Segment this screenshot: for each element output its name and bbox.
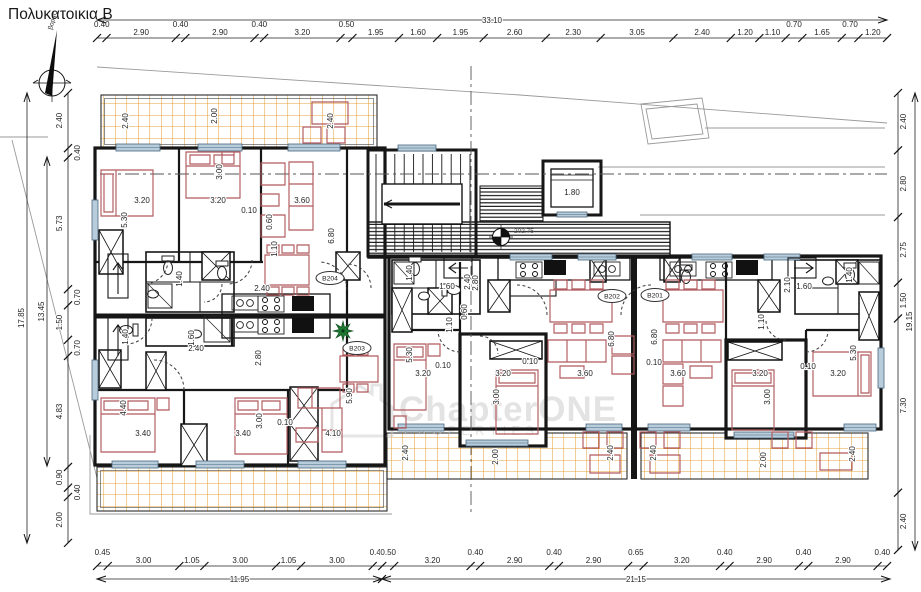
interior-dimension-label: 2.40	[463, 274, 472, 290]
dimension-label: 2.90	[212, 28, 228, 37]
interior-dimension-label: 3.00	[215, 164, 224, 180]
overall-dimension-label: 17.85	[17, 307, 26, 328]
apartment-label: B203	[349, 345, 365, 352]
window	[878, 348, 884, 388]
interior-dimension-label: 3.20	[210, 196, 226, 205]
overall-dimension-label: 13.45	[37, 301, 46, 322]
dimension-label: 1.50	[899, 292, 908, 308]
toilet-tank	[133, 324, 138, 336]
stove-burner	[275, 328, 280, 333]
kitchen-sink-icon	[232, 318, 258, 332]
kitchen-sink-bowl	[237, 300, 244, 307]
dimension-label: 0.40	[717, 548, 733, 557]
dimension-label: 2.90	[133, 28, 149, 37]
sink-icon	[419, 292, 430, 300]
stove-icon	[258, 296, 284, 312]
kitchen-sink-icon	[232, 296, 258, 310]
dimension-label: 2.60	[507, 28, 523, 37]
interior-dimension-label: 2.80	[254, 350, 263, 366]
interior-dimension-label: 2.40	[649, 445, 658, 461]
interior-dimension-label: 0.60	[265, 214, 274, 230]
interior-dimension-label: 2.40	[606, 445, 615, 461]
dimension-label: 1.95	[453, 28, 469, 37]
interior-dimension-label: 1.60	[439, 282, 455, 291]
interior-dimension-label: 0.10	[800, 362, 816, 371]
dimension-label: 2.90	[507, 556, 523, 565]
interior-dimension-label: 0.10	[241, 206, 257, 215]
kitchen-sink-bowl	[247, 300, 254, 307]
sink-icon	[148, 290, 159, 298]
dimension-label: 2.40	[899, 513, 908, 529]
interior-dimension-label: 0.60	[460, 304, 469, 320]
dimension-label: 0.50	[380, 548, 396, 557]
interior-dimension-label: 2.40	[188, 344, 204, 353]
tree-center	[341, 329, 344, 332]
interior-dimension-label: 6.80	[607, 331, 616, 347]
overall-dimension-label: 33.10	[482, 16, 503, 25]
dimension-label: 0.40	[252, 20, 268, 29]
appliance-icon	[736, 260, 758, 275]
toilet-tank	[409, 257, 421, 262]
stove-burner	[263, 320, 268, 325]
level-value: 202.75	[514, 228, 534, 235]
column-box	[290, 387, 318, 461]
interior-dimension-label: 6.80	[327, 228, 336, 244]
dimension-label: 2.00	[55, 512, 64, 528]
interior-dimension-label: 5.90	[345, 388, 354, 404]
interior-dimension-label: 0.10	[522, 357, 538, 366]
interior-dimension-label: 1.40	[405, 265, 414, 281]
dimension-label: 1.05	[281, 556, 297, 565]
dimension-label: 0.65	[628, 548, 644, 557]
dimension-label: 2.40	[55, 112, 64, 128]
interior-dimension-label: 3.40	[235, 429, 251, 438]
dimension-label: 0.40	[796, 548, 812, 557]
interior-dimension-label: 3.20	[752, 369, 768, 378]
shower-diag	[204, 316, 230, 342]
dimension-label: 1.10	[765, 28, 781, 37]
tree-icon	[334, 322, 353, 341]
interior-dimension-label: 2.40	[401, 445, 410, 461]
window	[92, 360, 98, 400]
toilet-tank	[216, 261, 228, 266]
dimension-label: 3.20	[294, 28, 310, 37]
dimension-label: 0.40	[468, 548, 484, 557]
interior-dimension-label: 5.30	[849, 345, 858, 361]
interior-dimension-label: 2.00	[210, 108, 219, 124]
overall-dimension-label: 19.15	[905, 311, 914, 332]
dimension-label: 2.30	[565, 28, 581, 37]
appliance-icon	[292, 318, 314, 333]
interior-dimension-label: 1.10	[270, 241, 279, 257]
interior-dimension-label: 2.80	[471, 275, 480, 291]
interior-dimension-label: 1.40	[845, 267, 854, 283]
window	[92, 200, 98, 240]
stove-burner	[275, 320, 280, 325]
dimension-label: 2.40	[694, 28, 710, 37]
interior-dimension-label: 4.10	[325, 429, 341, 438]
house-icon	[332, 385, 392, 436]
interior-dimension-label: 3.60	[670, 369, 686, 378]
appliance-icon	[292, 296, 314, 311]
dimension-label: 1.05	[184, 556, 200, 565]
dimension-label: 2.90	[756, 556, 772, 565]
interior-dimension-label: 1.40	[175, 271, 184, 287]
north-arrow: βορας	[33, 11, 71, 102]
overall-dimension-label: 11.95	[230, 575, 250, 584]
dimension-label: 0.70	[842, 20, 858, 29]
interior-dimension-label: 3.60	[294, 196, 310, 205]
dimension-label: 1.65	[814, 28, 830, 37]
dimension-label: 3.00	[136, 556, 152, 565]
dimension-label: 0.40	[73, 144, 82, 160]
stove-icon	[516, 262, 542, 278]
toilet-bowl	[218, 267, 227, 280]
dimension-label: 3.00	[329, 556, 345, 565]
dimension-label: 3.20	[425, 556, 441, 565]
dimension-label: 2.80	[899, 175, 908, 191]
dimension-label: 3.00	[232, 556, 248, 565]
stove-burner	[275, 298, 280, 303]
stove-icon	[706, 262, 732, 278]
dimension-label: 0.70	[73, 289, 82, 305]
dimension-label: 0.70	[786, 20, 802, 29]
interior-dimension-label: 3.00	[492, 389, 501, 405]
interior-dimension-label: 3.60	[577, 369, 593, 378]
stove-burner	[711, 264, 716, 269]
north-needle	[45, 30, 57, 96]
overall-dimension-label: 21.15	[626, 575, 647, 584]
stove-burner	[711, 272, 716, 277]
dimension-label: 2.90	[586, 556, 602, 565]
interior-dimension-label: 1.10	[445, 317, 454, 333]
stove-icon	[258, 318, 284, 334]
interior-dimension-label: 1.10	[757, 314, 766, 330]
interior-dimension-label: 3.20	[830, 369, 846, 378]
interior-dimension-label: 2.40	[848, 446, 857, 462]
stove-burner	[521, 272, 526, 277]
interior-dimension-label: 2.10	[783, 277, 792, 293]
apartment-label: B202	[604, 293, 620, 300]
dimension-label: 3.20	[674, 556, 690, 565]
interior-dimension-label: 2.40	[326, 113, 335, 129]
interior-dimension-label: 2.40	[121, 113, 130, 129]
toilet-icon	[216, 261, 228, 280]
interior-dimension-label: 5.30	[405, 347, 414, 363]
balconies	[97, 95, 868, 511]
interior-dimension-label: 0.10	[277, 418, 293, 427]
interior-dimension-label: 3.20	[495, 369, 511, 378]
interior-dimension-label: 1.80	[564, 188, 580, 197]
stove-burner	[533, 272, 538, 277]
dimension-label: 4.83	[55, 403, 64, 419]
kitchen-sink-bowl	[609, 266, 616, 273]
toilet-icon	[680, 265, 692, 284]
dimension-label: 0.70	[73, 340, 82, 356]
dimension-label: 1.95	[368, 28, 384, 37]
dimension-label: 2.75	[899, 242, 908, 258]
interior-dimension-label: 5.30	[120, 212, 129, 228]
interior-dimension-label: 3.40	[135, 429, 151, 438]
interior-dimension-label: 4.40	[119, 400, 128, 416]
interior-dimension-label: 2.00	[759, 452, 768, 468]
dimension-label: 2.40	[899, 113, 908, 129]
stove-burner	[521, 264, 526, 269]
dimension-label: 1.60	[410, 28, 426, 37]
interior-dimension-label: 0.10	[646, 358, 662, 367]
dimension-label: 1.20	[737, 28, 753, 37]
appliance-icon	[544, 260, 566, 275]
interior-dimension-label: 1.40	[121, 329, 130, 345]
dimension-label: 0.90	[55, 469, 64, 485]
dimension-label: 7.30	[899, 397, 908, 413]
shower-diag	[859, 262, 879, 284]
kitchen-sink-bowl	[247, 322, 254, 329]
stove-burner	[263, 328, 268, 333]
balcony-top-left	[101, 95, 377, 148]
interior-dimension-label: 3.00	[763, 389, 772, 405]
toilet-icon	[162, 256, 174, 275]
interior-dimension-label: 3.00	[255, 413, 264, 429]
kitchen-sink-bowl	[237, 322, 244, 329]
sink-icon	[823, 277, 834, 285]
apartment-label: B204	[322, 275, 338, 282]
balcony-bottom-left	[97, 467, 387, 511]
dimension-label: 1.20	[865, 28, 881, 37]
stove-burner	[275, 306, 280, 311]
stove-burner	[533, 264, 538, 269]
dimension-label: 0.40	[875, 548, 891, 557]
entry-deck-strip-a	[480, 186, 543, 222]
dimension-label: 0.50	[339, 20, 355, 29]
stove-burner	[263, 306, 268, 311]
interior-dimension-label: 1.60	[796, 282, 812, 291]
stove-burner	[263, 298, 268, 303]
balcony-b201	[641, 433, 868, 479]
floor-plan-canvas: ChapterONE PROPERTIES	[0, 0, 921, 592]
apartment-label: B201	[647, 292, 663, 299]
dimension-label: 3.05	[629, 28, 645, 37]
interior-dimension-label: 3.20	[134, 196, 150, 205]
interior-dimension-label: 6.80	[650, 329, 659, 345]
interior-dimension-label: 3.20	[415, 369, 431, 378]
interior-dimension-label: 2.00	[491, 449, 500, 465]
dimension-label: 0.45	[95, 548, 111, 557]
dimension-label: 2.90	[835, 556, 851, 565]
dimension-label: 1.50	[55, 314, 64, 330]
dimension-label: 0.40	[73, 484, 82, 500]
dimension-label: 5.73	[55, 215, 64, 231]
dimension-label: 0.40	[173, 20, 189, 29]
dimension-label: 0.40	[546, 548, 562, 557]
interior-dimension-label: 0.10	[435, 361, 451, 370]
interior-dimension-label: 2.40	[254, 284, 270, 293]
